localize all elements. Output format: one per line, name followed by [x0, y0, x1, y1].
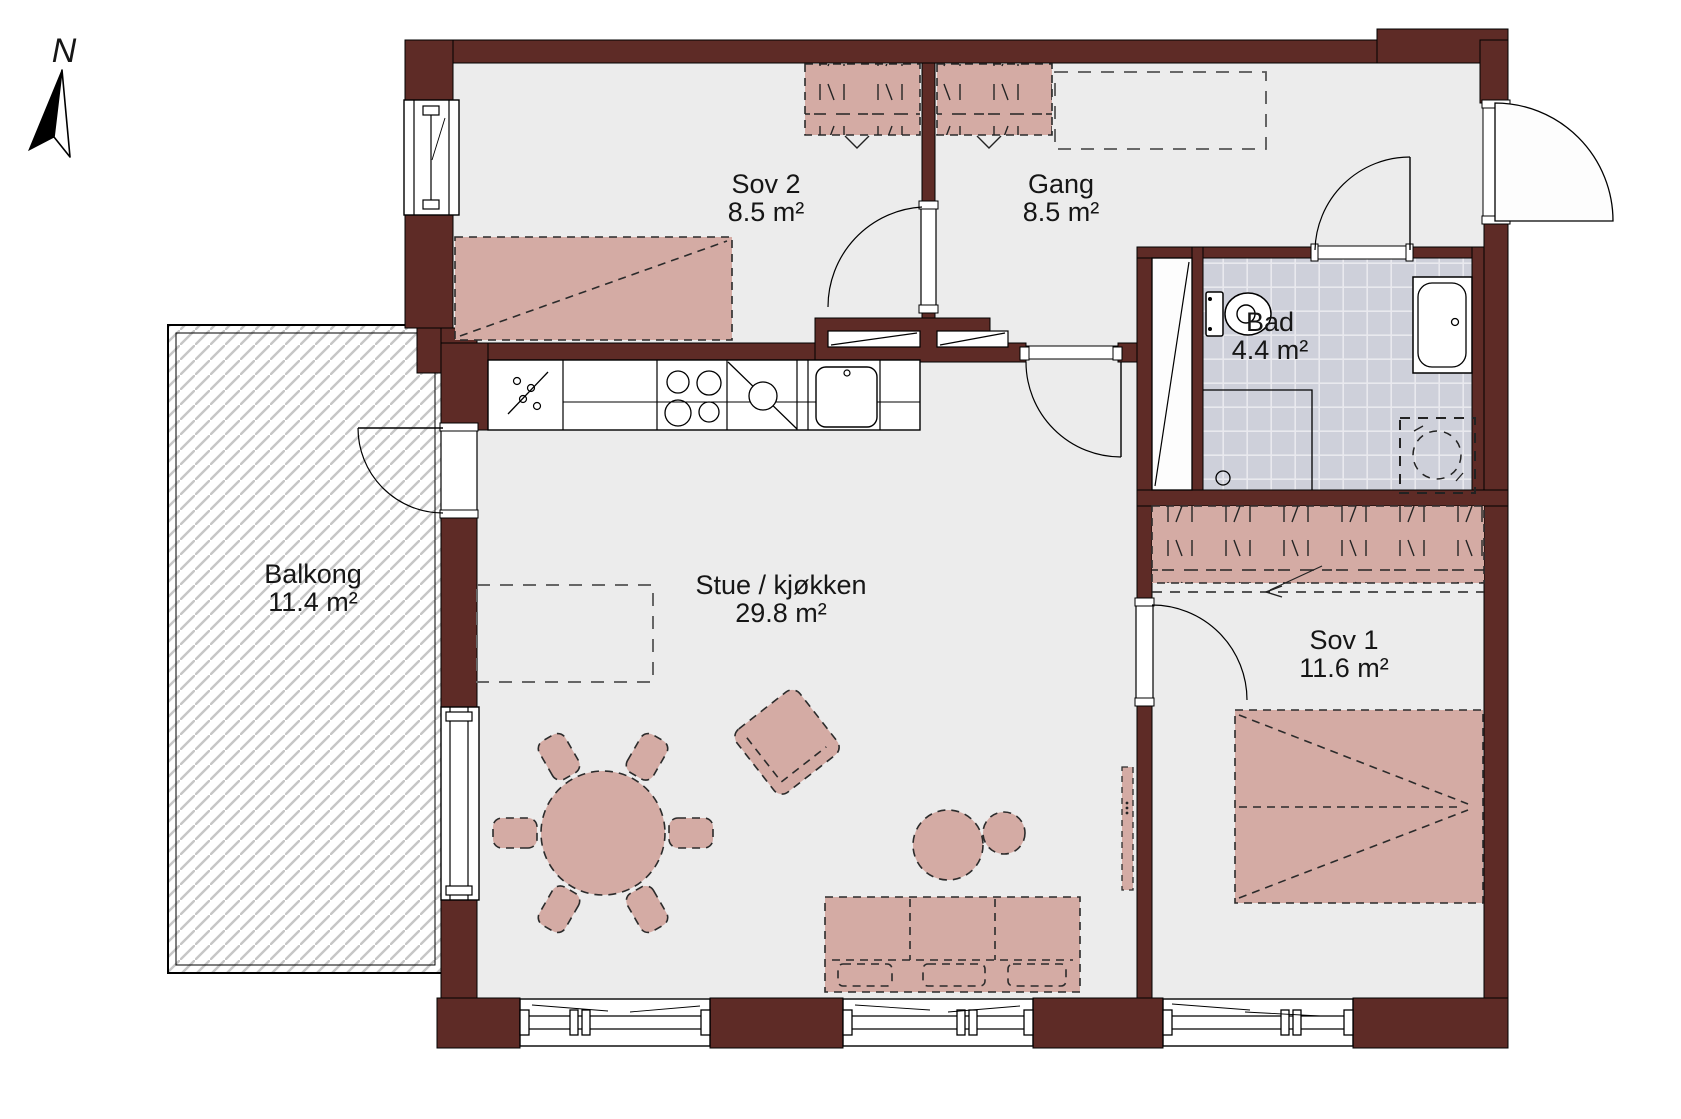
label-stue-area: 29.8 m²: [735, 598, 827, 628]
wall-bottom-1: [437, 998, 520, 1048]
floorplan-page: N Sov 2 8.5 m² Gang 8.5 m² Bad 4.4 m² St…: [0, 0, 1681, 1119]
side-table-large: [913, 810, 983, 880]
tv-dots: [1126, 802, 1129, 815]
dining-table: [541, 771, 665, 895]
door-entrance-swing: [1495, 103, 1613, 221]
wall-shaft-right: [1192, 247, 1203, 490]
label-bad: Bad: [1246, 307, 1294, 337]
label-gang-area: 8.5 m²: [1023, 197, 1100, 227]
wall-bottom-4: [1353, 998, 1508, 1048]
wall-stue-sov1: [1137, 700, 1152, 998]
wall-left-upper-a: [405, 40, 453, 103]
floorplan-drawing: N Sov 2 8.5 m² Gang 8.5 m² Bad 4.4 m² St…: [0, 0, 1681, 1119]
label-sov1: Sov 1: [1309, 625, 1378, 655]
label-balkong-area: 11.4 m²: [268, 587, 358, 617]
north-label: N: [52, 32, 77, 70]
label-bad-area: 4.4 m²: [1232, 335, 1309, 365]
technical-shaft: [1152, 258, 1192, 490]
kitchen-counter: [488, 360, 920, 430]
side-table-small: [983, 812, 1025, 854]
wall-left-upper-b: [405, 212, 453, 328]
wall-kitchen-corner: [441, 343, 488, 430]
label-sov1-area: 11.6 m²: [1299, 653, 1389, 683]
kitchen-sink: [816, 367, 877, 427]
wall-column-a: [1137, 247, 1152, 603]
wall-sov2-kitchen: [488, 343, 815, 362]
label-stue: Stue / kjøkken: [695, 570, 866, 600]
bed-sov1: [1235, 710, 1483, 903]
wall-top: [405, 40, 1508, 63]
window-sov2: [404, 100, 459, 215]
wall-bottom-3: [1033, 998, 1163, 1048]
wall-left-lower-b: [441, 513, 477, 707]
window-stue-south-2: [843, 999, 1033, 1046]
bathtub: [1413, 277, 1472, 373]
wall-right: [1484, 222, 1508, 1048]
north-arrow-icon: N: [29, 32, 77, 157]
bed-sov2: [455, 237, 732, 340]
wall-left-lower-c: [441, 900, 477, 998]
window-stue-west: [441, 707, 479, 900]
wall-bad-bottom: [1137, 490, 1508, 506]
label-sov2-area: 8.5 m²: [728, 197, 805, 227]
wall-right-stub: [1480, 40, 1508, 103]
label-sov2: Sov 2: [731, 169, 800, 199]
wall-sov2-gang-a: [922, 63, 935, 207]
wall-bottom-2: [710, 998, 843, 1048]
wall-bad-top-a: [1137, 247, 1315, 258]
label-balkong: Balkong: [264, 559, 362, 589]
window-stue-south-1: [520, 999, 710, 1046]
wall-niche-slots: [828, 331, 1008, 347]
wall-bad-right: [1472, 247, 1484, 506]
tv: [1122, 767, 1133, 890]
door-entrance: [1482, 100, 1613, 224]
window-sov1-south: [1163, 999, 1353, 1046]
balcony: [168, 325, 443, 973]
sofa: [825, 897, 1080, 992]
label-gang: Gang: [1028, 169, 1094, 199]
